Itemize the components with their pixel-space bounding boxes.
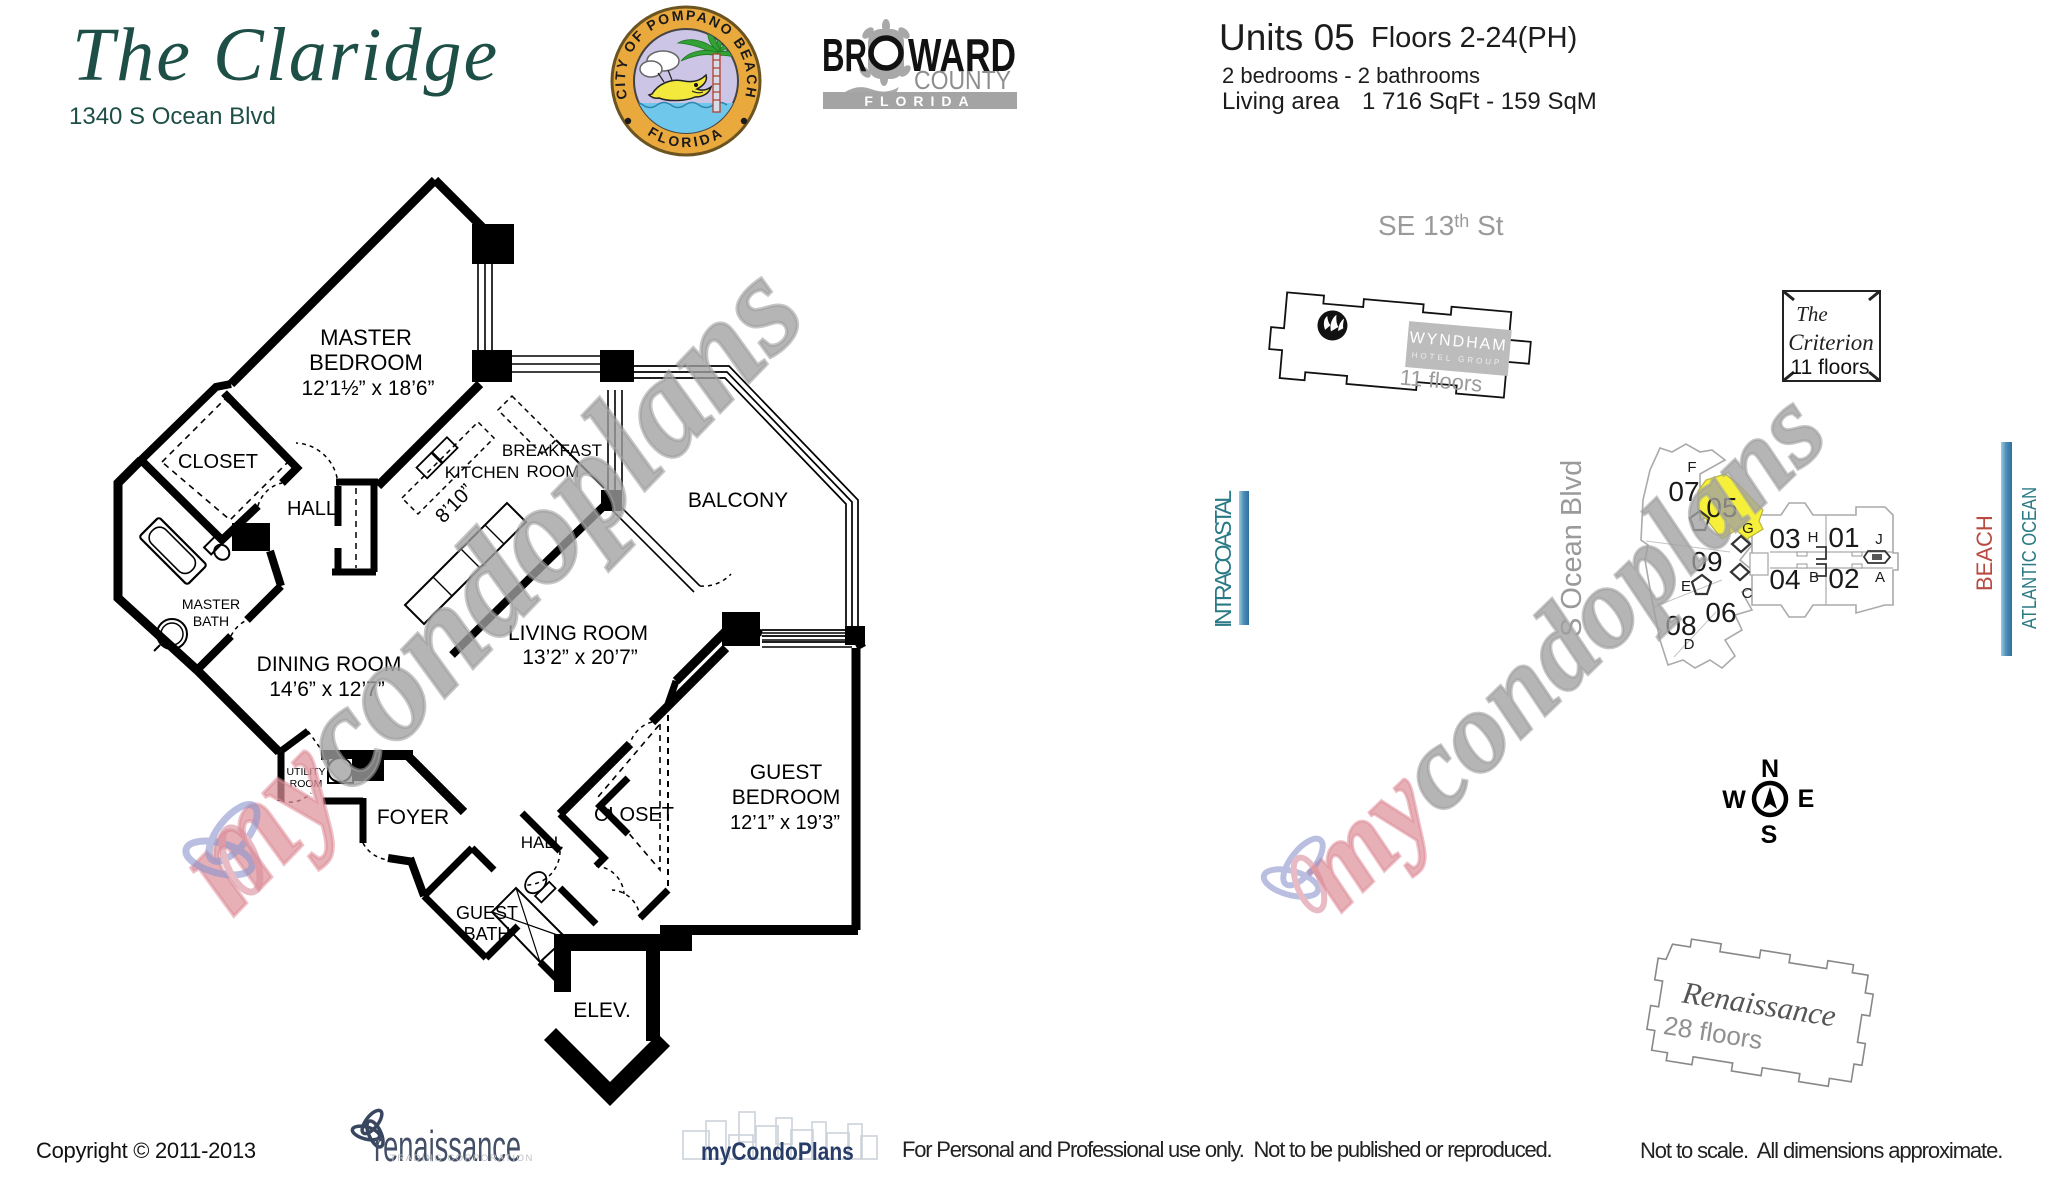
svg-text:MASTER: MASTER xyxy=(320,325,412,350)
svg-text:GUEST: GUEST xyxy=(750,761,823,784)
svg-text:11 floors: 11 floors xyxy=(1791,356,1870,379)
svg-text:HALL: HALL xyxy=(287,498,337,520)
svg-text:BEDROOM: BEDROOM xyxy=(309,350,423,375)
svg-text:04: 04 xyxy=(1769,564,1800,595)
svg-text:02: 02 xyxy=(1828,563,1859,594)
svg-text:E: E xyxy=(1798,785,1815,813)
svg-text:D: D xyxy=(1684,636,1695,653)
svg-text:MASTER: MASTER xyxy=(182,596,240,612)
svg-text:BATH: BATH xyxy=(464,924,511,944)
svg-text:CLOSET: CLOSET xyxy=(594,804,674,826)
svg-text:S: S xyxy=(1761,821,1778,849)
svg-text:06: 06 xyxy=(1705,597,1736,628)
svg-text:ELEV.: ELEV. xyxy=(573,999,631,1022)
svg-text:W: W xyxy=(1722,786,1746,814)
svg-text:A: A xyxy=(1875,569,1885,586)
svg-text:J: J xyxy=(1875,531,1883,548)
svg-text:BEDROOM: BEDROOM xyxy=(732,786,841,809)
svg-text:C: C xyxy=(1742,585,1753,602)
svg-text:BATH: BATH xyxy=(193,613,229,629)
svg-text:BEACH: BEACH xyxy=(1972,515,1997,591)
svg-text:HALL: HALL xyxy=(521,833,564,852)
svg-text:COUNTY: COUNTY xyxy=(914,65,1011,95)
svg-text:ATLANTIC OCEAN: ATLANTIC OCEAN xyxy=(2019,487,2041,629)
svg-text:BR: BR xyxy=(822,29,867,81)
svg-text:01: 01 xyxy=(1828,522,1859,553)
svg-text:13’2” x 20’7”: 13’2” x 20’7” xyxy=(522,646,638,669)
svg-text:H: H xyxy=(1808,529,1819,546)
svg-text:Criterion: Criterion xyxy=(1788,330,1874,355)
svg-text:N: N xyxy=(1761,755,1779,783)
svg-text:FOYER: FOYER xyxy=(377,806,449,829)
svg-text:B: B xyxy=(1809,569,1819,586)
svg-text:The: The xyxy=(1796,302,1828,326)
svg-text:GUEST: GUEST xyxy=(456,903,518,923)
svg-text:12’1” x 19’3”: 12’1” x 19’3” xyxy=(730,812,840,834)
svg-text:INTRACOASTAL: INTRACOASTAL xyxy=(1210,490,1236,628)
svg-text:12’1½” x 18’6”: 12’1½” x 18’6” xyxy=(301,377,434,400)
svg-text:BALCONY: BALCONY xyxy=(688,489,788,512)
svg-text:CLOSET: CLOSET xyxy=(178,451,258,473)
svg-text:FLORIDA: FLORIDA xyxy=(864,93,975,109)
